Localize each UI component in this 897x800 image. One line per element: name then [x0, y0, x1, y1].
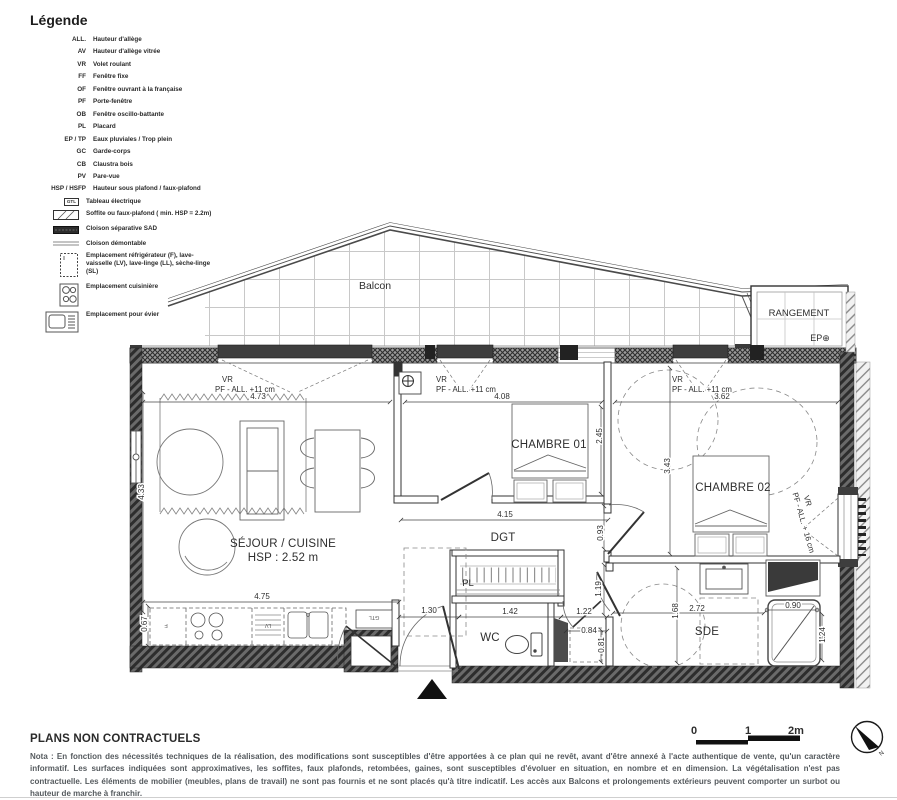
- footer-nota: Nota : En fonction des nécessités techni…: [30, 751, 840, 800]
- dim-kitchen-w: 4.75: [254, 592, 270, 601]
- window-bedroom2-side: [838, 487, 862, 567]
- legend-label: Tableau électrique: [86, 198, 141, 206]
- legend-title: Légende: [30, 12, 215, 28]
- separating-partition-icon: [30, 225, 86, 235]
- legend-row-appliance: Emplacement réfrigérateur (F), lave-vais…: [30, 252, 215, 278]
- legend-label: Porte-fenêtre: [93, 98, 132, 106]
- bedroom1-furniture: [512, 404, 588, 502]
- floor-plan-page: Balcon RANGEMENT EP⊕: [0, 0, 897, 800]
- gtl-label: GTL: [369, 614, 380, 620]
- legend-abbr: PF: [30, 98, 93, 106]
- legend-row: ALL.Hauteur d'allège: [30, 36, 215, 44]
- legend-row-sad: Cloison séparative SAD: [30, 225, 215, 235]
- legend-row-cooktop: Emplacement cuisinière: [30, 283, 215, 307]
- legend-abbr: OF: [30, 86, 93, 94]
- room-label-wc: WC: [480, 632, 500, 644]
- dishwasher-label: LV: [265, 622, 272, 628]
- room-label-living-hsp: HSP : 2.52 m: [248, 552, 319, 564]
- dim-shower-d: 1.24: [818, 627, 827, 643]
- dim-pass2: 1.19: [594, 581, 603, 597]
- living-pf: PF - ALL. +11 cm: [215, 385, 275, 394]
- cooktop-icon: [191, 613, 223, 640]
- gtl-legend-icon: GTL: [30, 198, 86, 206]
- closet-interior: [404, 548, 560, 636]
- legend-label: Emplacement pour évier: [86, 311, 159, 319]
- legend-row-demountable: Cloison démontable: [30, 240, 215, 248]
- legend-label: Claustra bois: [93, 161, 133, 169]
- legend-label: Fenêtre ouvrant à la française: [93, 86, 182, 94]
- bed1-vr: VR: [436, 375, 447, 384]
- legend-abbr: GC: [30, 148, 93, 156]
- legend-label: Hauteur sous plafond / faux-plafond: [93, 185, 201, 193]
- footer-title: PLANS NON CONTRACTUELS: [30, 733, 840, 745]
- appliance-box-icon: [30, 252, 86, 278]
- ep-symbol: [399, 372, 421, 394]
- legend-label: Fenêtre oscillo-battante: [93, 111, 164, 119]
- bottom-divider: [0, 797, 897, 798]
- soffit-hatch-icon: [30, 210, 86, 220]
- legend-row: PLPlacard: [30, 123, 215, 131]
- fridge-label: F: [164, 622, 168, 628]
- dim-bed1-w: 4.08: [494, 392, 510, 401]
- legend-label: Hauteur d'allège vitrée: [93, 48, 160, 56]
- dim-sde-w: 2.72: [689, 604, 705, 613]
- dim-bed1-d: 2.45: [595, 428, 604, 444]
- legend-label: Emplacement réfrigérateur (F), lave-vais…: [86, 252, 215, 276]
- bedroom1-door: [441, 473, 492, 500]
- legend-row: PVPare-vue: [30, 173, 215, 181]
- legend-label: Fenêtre fixe: [93, 73, 128, 81]
- legend-label: Soffite ou faux-plafond ( min. HSP = 2.2…: [86, 210, 211, 218]
- legend-abbr: EP / TP: [30, 136, 93, 144]
- storage-ep-label: EP⊕: [810, 333, 830, 343]
- top-wall: [130, 345, 856, 363]
- dim-pass1: 0.93: [596, 525, 605, 541]
- window-bedroom1: [437, 345, 493, 358]
- room-label-living: SÉJOUR / CUISINE: [230, 537, 336, 550]
- storage-label: RANGEMENT: [769, 308, 830, 319]
- sink-legend-icon: [30, 311, 86, 333]
- compass-north: N: [878, 750, 885, 757]
- room-label-sde: SDE: [695, 626, 719, 638]
- legend-label: Cloison séparative SAD: [86, 225, 157, 233]
- legend-row-soffit: Soffite ou faux-plafond ( min. HSP = 2.2…: [30, 210, 215, 220]
- legend-row: OBFenêtre oscillo-battante: [30, 111, 215, 119]
- counter-icon: [766, 560, 820, 596]
- legend-label: Cloison démontable: [86, 240, 146, 248]
- legend-row-gtl: GTL Tableau électrique: [30, 198, 215, 206]
- legend-row: EP / TPEaux pluviales / Trop plein: [30, 136, 215, 144]
- sink-icon: [288, 612, 328, 638]
- room-label-closet: PL: [462, 578, 474, 589]
- bed2-vr: VR: [672, 375, 683, 384]
- entrance-arrow: [417, 679, 447, 699]
- legend-abbr: VR: [30, 61, 93, 69]
- legend-abbr: PL: [30, 123, 93, 131]
- legend-label: Eaux pluviales / Trop plein: [93, 136, 172, 144]
- sde-fixtures: [621, 560, 820, 668]
- legend-label: Volet roulant: [93, 61, 131, 69]
- dim-living-d: 4.33: [137, 484, 146, 500]
- legend-abbr: ALL.: [30, 36, 93, 44]
- legend-row: HSP / HSFPHauteur sous plafond / faux-pl…: [30, 185, 215, 193]
- legend-row: OFFenêtre ouvrant à la française: [30, 86, 215, 94]
- legend-label: Hauteur d'allège: [93, 36, 142, 44]
- legend-abbr: PV: [30, 173, 93, 181]
- room-label-bedroom1: CHAMBRE 01: [511, 439, 587, 451]
- legend-row-sink: Emplacement pour évier: [30, 311, 215, 333]
- room-label-bedroom2: CHAMBRE 02: [695, 482, 771, 494]
- legend-row: CBClaustra bois: [30, 161, 215, 169]
- legend-row: PFPorte-fenêtre: [30, 98, 215, 106]
- soffit-zone: [404, 548, 466, 636]
- legend-abbr: CB: [30, 161, 93, 169]
- dim-lobby-w: 1.22: [576, 607, 592, 616]
- legend-row: VRVolet roulant: [30, 61, 215, 69]
- dim-bed2-d: 3.43: [663, 458, 672, 474]
- legend-label: Garde-corps: [93, 148, 130, 156]
- window-living: [218, 345, 372, 358]
- room-label-hall: DGT: [491, 532, 516, 544]
- demountable-partition-icon: [30, 240, 86, 248]
- dim-bed1-w-bottom: 4.15: [497, 510, 513, 519]
- legend-row: AVHauteur d'allège vitrée: [30, 48, 215, 56]
- bedroom2-door: [608, 505, 644, 554]
- cooktop-legend-icon: [30, 283, 86, 307]
- dim-closet-w: 1.42: [502, 607, 518, 616]
- window-bedroom2: [673, 345, 728, 358]
- balcony-label: Balcon: [359, 280, 391, 292]
- bed1-pf: PF - ALL. +11 cm: [436, 385, 496, 394]
- dim-sde-d: 1.68: [671, 603, 680, 619]
- legend-label: Placard: [93, 123, 116, 131]
- legend-label: Emplacement cuisinière: [86, 283, 158, 291]
- footer: PLANS NON CONTRACTUELS Nota : En fonctio…: [30, 733, 840, 800]
- legend-label: Pare-vue: [93, 173, 120, 181]
- dim-pass3: 0.81: [597, 637, 606, 653]
- legend-abbr: HSP / HSFP: [30, 185, 93, 193]
- legend-row: GCGarde-corps: [30, 148, 215, 156]
- legend-abbr: AV: [30, 48, 93, 56]
- balcony-area: Balcon: [130, 223, 856, 347]
- dim-shower-w: 0.90: [785, 601, 801, 610]
- toilet-icon: [506, 633, 543, 656]
- dim-niche-w: 0.84: [581, 626, 597, 635]
- dim-entry-w: 1.30: [421, 606, 437, 615]
- living-vr: VR: [222, 375, 233, 384]
- vanity-icon: [700, 564, 748, 594]
- legend-row: FFFenêtre fixe: [30, 73, 215, 81]
- bed2-pf: PF - ALL. +11 cm: [672, 385, 732, 394]
- entry-cabinet: [351, 636, 391, 666]
- legend: Légende ALL.Hauteur d'allège AVHauteur d…: [30, 12, 215, 338]
- legend-abbr: OB: [30, 111, 93, 119]
- dim-kitchen-d: 0.67: [140, 616, 149, 632]
- legend-abbr: FF: [30, 73, 93, 81]
- compass-icon: N: [852, 722, 886, 758]
